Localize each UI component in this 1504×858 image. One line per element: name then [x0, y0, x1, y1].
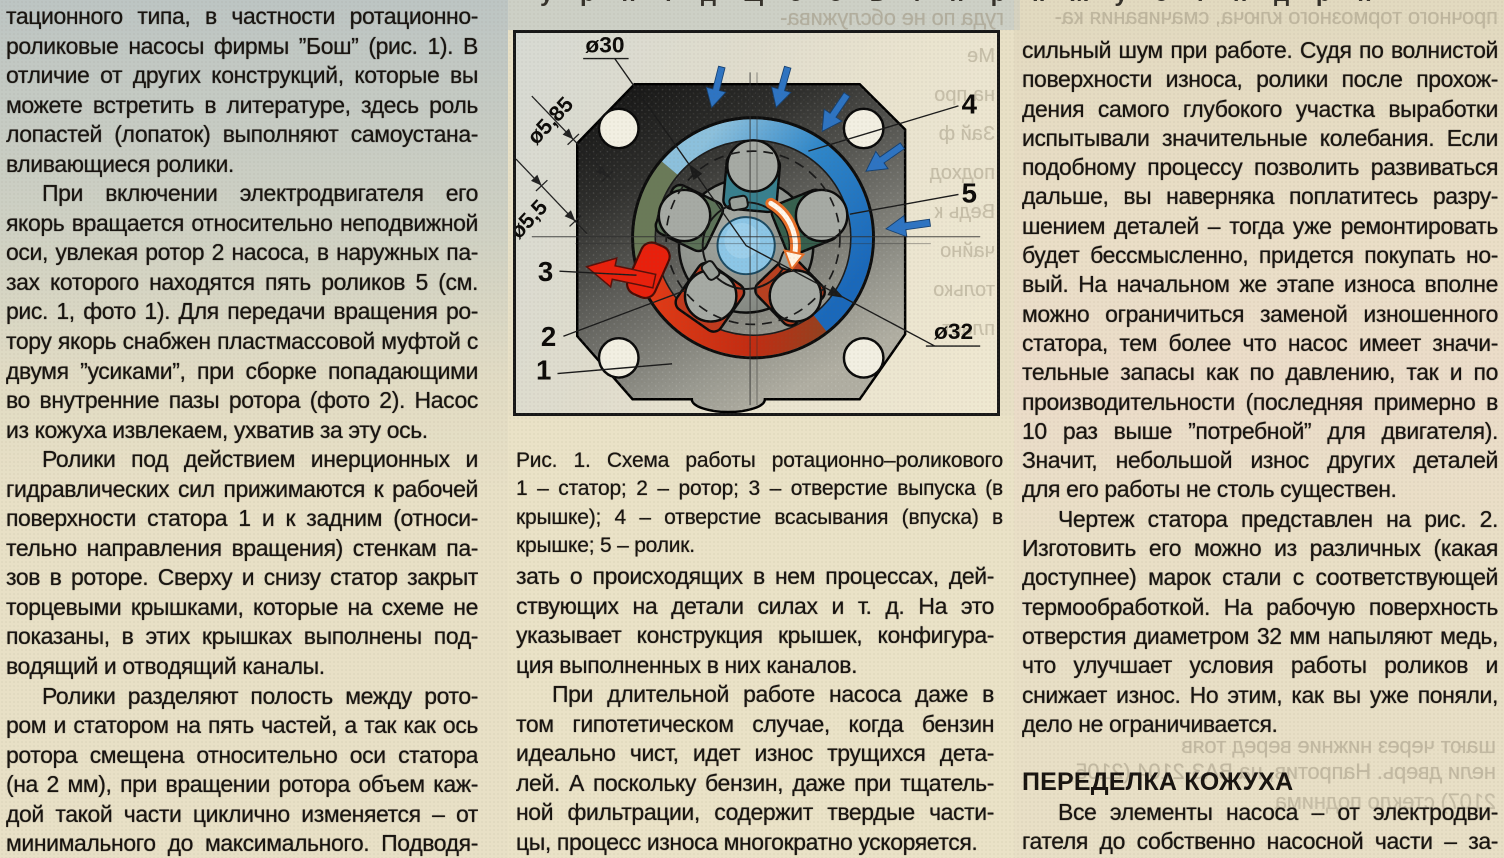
text-line: гателя до собственно насосной части – за…	[1022, 827, 1498, 856]
text-line: ной фильтрации, содержит твердые части-	[516, 798, 994, 828]
text-line: якорь вращается относительно неподвижной	[6, 209, 478, 239]
text-line: доступнее) марок стали с соответствующей	[1022, 563, 1498, 592]
text-line: вливающиеся ролики.	[6, 150, 478, 180]
figure-caption: Рис. 1. Схема работы ротационно–роликово…	[516, 447, 1003, 560]
text-line: дой такой части циклично изменяется – от	[6, 800, 478, 830]
roller	[727, 140, 778, 191]
text-line: лей. А поскольку бензин, даже при тщател…	[516, 769, 994, 799]
text-line: При включении электродвигателя его	[6, 179, 478, 209]
dim-label-d30: ø30	[585, 33, 624, 58]
text-line: подобному процессу позволить развиваться	[1022, 153, 1498, 182]
text-line: Ролики под действием инерционных и	[6, 445, 478, 475]
text-line: 1 – статор; 2 – ротор; 3 – отверстие вып…	[516, 475, 1003, 503]
callout-3: 3	[538, 256, 553, 287]
text-line: двумя ”усиками”, при сборке попадающими	[6, 357, 478, 387]
text-line: отличие от других конструкций, которые в…	[6, 61, 478, 91]
bleed-through-text: прочного тормозного ключа, смачивания ка…	[1016, 4, 1498, 30]
cut-off-top-line: у р п т д щ з о в т п р к ж у с т н д р …	[540, 0, 1504, 7]
section-heading: ПЕРЕДЕЛКА КОЖУХА	[1022, 768, 1498, 797]
text-line: зать о происходящих в нем процессах, дей…	[516, 562, 994, 592]
text-line: зов в роторе. Сверху и снизу статор закр…	[6, 563, 478, 593]
figure-1-pump-diagram: Мена проЗай фподходВедь кчайнотолькоплас…	[513, 30, 1000, 416]
callout-5: 5	[962, 177, 977, 208]
coupling-tab	[729, 195, 749, 211]
text-line: рис. 1, фото 1). Для передачи вращения р…	[6, 297, 478, 327]
text-line: отверстия диаметром 32 мм напыляют медь,	[1022, 622, 1498, 651]
text-line: гидравлических сил прижимаются к рабочей	[6, 475, 478, 505]
text-line: Значит, небольшой износ других деталей	[1022, 446, 1498, 475]
text-line: сильный шум при работе. Судя по волнисто…	[1022, 36, 1498, 65]
left-text-column: тационного типа, в частности ротационно-…	[6, 2, 478, 858]
text-line: оси, увлекая ротор 2 насоса, в наружных …	[6, 238, 478, 268]
text-line: Все элементы насоса – от электродви-	[1022, 798, 1498, 827]
magazine-scan-page: у р п т д щ з о в т п р к ж у с т н д р …	[0, 0, 1504, 858]
text-line: из кожуха извлекаем, ухватив за эту ось.	[6, 416, 478, 446]
text-line: ция выполненных в них каналов.	[516, 651, 994, 681]
bleed-through-text: гуда по не обслужива-	[612, 5, 1004, 31]
text-line: для его работы не столь существен.	[1022, 475, 1498, 504]
text-line: во внутренние пазы ротора (фото 2). Насо…	[6, 386, 478, 416]
text-line: крышке; 5 – ролик.	[516, 532, 1003, 560]
text-line: статора, тем более что насос имеет значи…	[1022, 329, 1498, 358]
text-line: снижает износ. Но этим, как вы уже понял…	[1022, 681, 1498, 710]
text-line: При длительной работе насоса даже в	[516, 680, 994, 710]
text-line: водящий и отводящий каналы.	[6, 652, 478, 682]
dim-label-d55: ø5,5	[516, 195, 552, 244]
text-line: дения самого глубокого участка выработки	[1022, 95, 1498, 124]
text-line: дело не ограничивается.	[1022, 710, 1498, 739]
text-line: тельно направления вращения) стенкам па-	[6, 534, 478, 564]
text-line: крышке); 4 – отверстие всасывания (впуск…	[516, 504, 1003, 532]
pump-schematic-drawing: ø30 ø32 ø5,85 ø5,5	[516, 33, 997, 413]
middle-text-column: зать о происходящих в нем процессах, дей…	[516, 562, 994, 857]
text-line: испытывали значительные колебания. Если	[1022, 124, 1498, 153]
text-line: вый. На начальном же этапе износа вполне	[1022, 270, 1498, 299]
text-line: поверхности статора 1 и к задним (относи…	[6, 504, 478, 534]
right-text-column: сильный шум при работе. Судя по волнисто…	[1022, 36, 1498, 856]
callout-2: 2	[541, 321, 556, 352]
text-line: цы, процесс износа многократно ускоряетс…	[516, 828, 994, 858]
text-line: указывает конструкция крышек, конфигура-	[516, 621, 994, 651]
text-line: тору якорь снабжен пластмассовой муфтой …	[6, 327, 478, 357]
text-line: торцевыми крышками, которые на схеме не	[6, 593, 478, 623]
dim-label-d585: ø5,85	[522, 92, 578, 150]
text-line: Рис. 1. Схема работы ротационно–роликово…	[516, 447, 1003, 475]
text-line: минимального до максимального. Подводя-	[6, 829, 478, 858]
text-line: будет бессмысленно, придется покупать но…	[1022, 241, 1498, 270]
text-line: лопастей (лопаток) выполняют самоустана-	[6, 120, 478, 150]
text-line: поверхности износа, ролики после прохож-	[1022, 65, 1498, 94]
text-line: тационного типа, в частности ротационно-	[6, 2, 478, 32]
text-line: Чертеж статора представлен на рис. 2.	[1022, 505, 1498, 534]
text-line: (на 2 мм), при вращении ротора объем каж…	[6, 770, 478, 800]
text-line: 10 раз выше ”потребной” для двигателя).	[1022, 417, 1498, 446]
text-line	[1022, 739, 1498, 768]
callout-1: 1	[536, 355, 551, 386]
mount-hole	[599, 109, 639, 148]
mount-hole	[844, 109, 884, 148]
callout-4: 4	[962, 89, 978, 120]
text-line: Ролики разделяют полость между рото-	[6, 682, 478, 712]
text-line: том гипотетическом случае, когда бензин	[516, 710, 994, 740]
text-line: идеально чист, идет износ трущихся дета-	[516, 739, 994, 769]
text-line: Изготовить его можно из различных (какая	[1022, 534, 1498, 563]
text-line: тельные запасы как по давлению, так и по	[1022, 358, 1498, 387]
text-line: можете встретить в литературе, здесь рол…	[6, 91, 478, 121]
text-line: термообработкой. На рабочую поверхность	[1022, 593, 1498, 622]
text-line: производительности (последняя примерно в	[1022, 388, 1498, 417]
text-line: зах которого находятся пять роликов 5 (с…	[6, 268, 478, 298]
text-line: показаны, в этих крышках выполнены под-	[6, 622, 478, 652]
dim-label-d32: ø32	[934, 318, 973, 344]
text-line: шением деталей – тогда уже ремонтировать	[1022, 212, 1498, 241]
text-line: что улучшает условия работы роликов и	[1022, 651, 1498, 680]
mount-hole	[599, 338, 639, 377]
text-line: ствующих на детали силах и т. д. На это	[516, 592, 994, 622]
text-line: можно ограничиться заменой изношенного	[1022, 300, 1498, 329]
text-line: дальше, вы наверняка поплатитесь разру-	[1022, 182, 1498, 211]
text-line: ротора смещена относительно оси статора	[6, 741, 478, 771]
text-line: ром и статором на пять частей, а так как…	[6, 711, 478, 741]
text-line: роликовые насосы фирмы ”Бош” (рис. 1). В	[6, 32, 478, 62]
mount-hole	[844, 338, 884, 377]
